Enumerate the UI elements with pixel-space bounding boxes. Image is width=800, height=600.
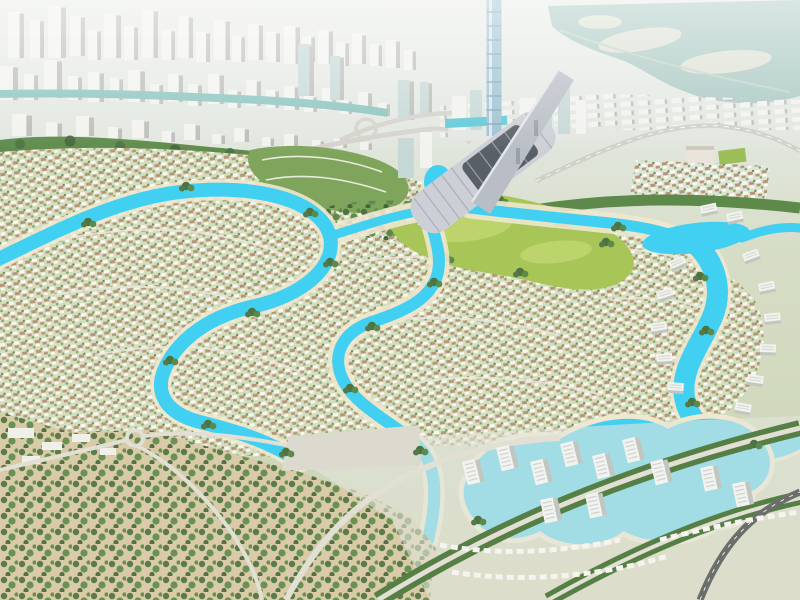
atmospheric-haze <box>0 0 800 155</box>
low-village <box>630 160 770 200</box>
masterplan-scene <box>0 0 800 600</box>
aerial-rendering <box>0 0 800 600</box>
